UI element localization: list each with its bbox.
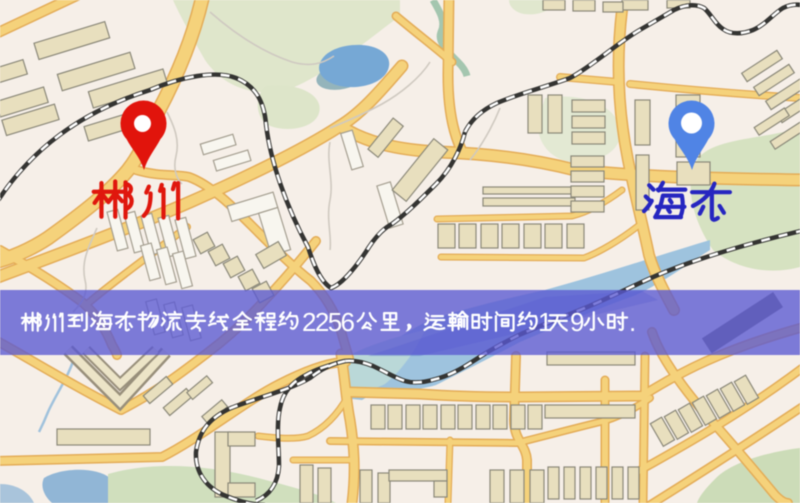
svg-text:2256: 2256 <box>302 307 355 337</box>
svg-text:9: 9 <box>570 307 584 337</box>
svg-text:.: . <box>629 307 636 337</box>
